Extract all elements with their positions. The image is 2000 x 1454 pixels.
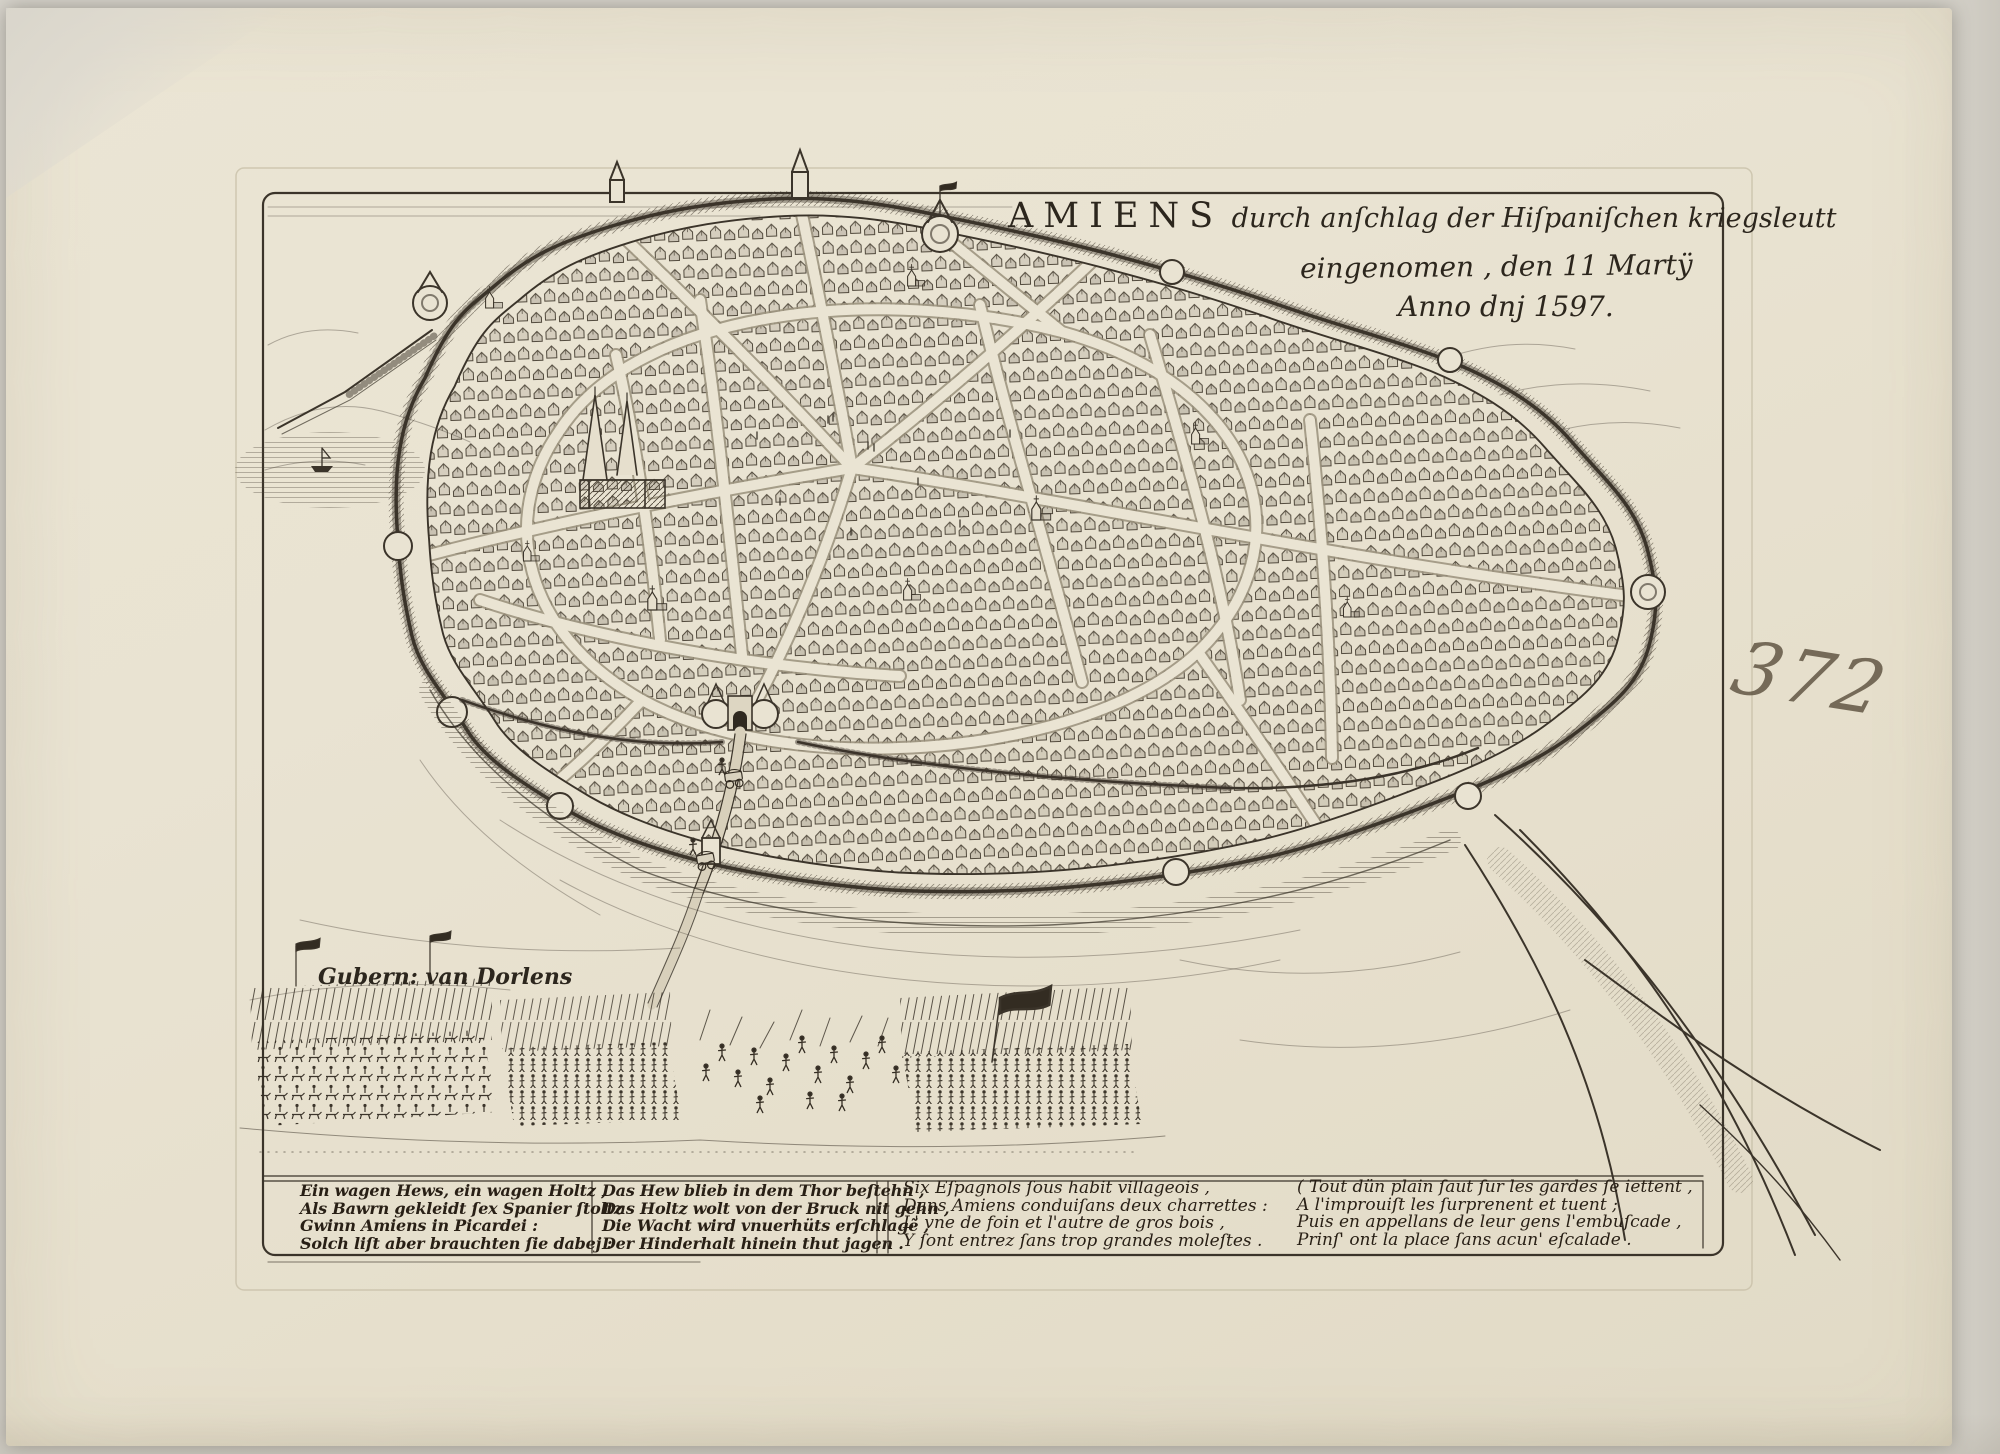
scanned-print: AMIENS durch anſchlag der Hiſpaniſchen k…	[0, 0, 2000, 1454]
caption-line: Das Holtz wolt von der Bruck nit gehn ,	[602, 1200, 949, 1218]
caption-french-column-2: ( Tout dün plain ſaut ſur les gardes ſe …	[1297, 1179, 1693, 1249]
caption-german-column-2: Das Hew blieb in dem Thor beſtehn , Das …	[602, 1182, 949, 1252]
caption-line: Die Wacht wird vnuerhüts erſchlagẽ ,	[602, 1217, 949, 1235]
caption-line: Y ſont entrez ſans trop grandes moleſtes…	[903, 1233, 1268, 1251]
caption-line: Six Eſpagnols ſous habit villageois ,	[903, 1180, 1268, 1198]
caption-line: Das Hew blieb in dem Thor beſtehn ,	[602, 1182, 949, 1200]
paper-bottom-edge-shadow	[0, 1414, 2000, 1454]
caption-line: Solch liſt aber brauchten ſie dabej :	[300, 1235, 623, 1253]
governor-label: Gubern: van Dorlens	[318, 964, 572, 990]
caption-line: Der Hinderhalt hinein thut jagen .	[602, 1235, 949, 1253]
caption-line: Prinſ' ont la place ſans acun' eſcalade …	[1297, 1232, 1693, 1250]
paper-right-edge-shadow	[1940, 0, 2000, 1454]
caption-line: ( Tout dün plain ſaut ſur les gardes ſe …	[1297, 1179, 1693, 1197]
caption-line: Ein wagen Hews, ein wagen Holtz ,	[300, 1182, 623, 1200]
caption-french-column-1: Six Eſpagnols ſous habit villageois , Da…	[903, 1180, 1268, 1250]
caption-line: Gwinn Amiens in Picardei :	[300, 1217, 623, 1235]
skirmishers-at-bridge	[700, 1010, 899, 1113]
title-city-name: AMIENS	[1008, 196, 1223, 236]
title-line2: eingenomen , den 11 Martÿ	[1300, 248, 1693, 285]
title-line1-rest: durch anſchlag der Hiſpaniſchen kriegsle…	[1223, 203, 1836, 234]
caption-german-column-1: Ein wagen Hews, ein wagen Holtz , Als Ba…	[300, 1182, 623, 1252]
title-line3: Anno dnj 1597.	[1398, 290, 1614, 323]
print-title: AMIENS durch anſchlag der Hiſpaniſchen k…	[1008, 196, 1836, 236]
caption-line: Als Bawrn gekleidt ſex Spanier ſtoltz	[300, 1200, 623, 1218]
caption-line: L' vne de foin et l'autre de gros bois ,	[903, 1215, 1268, 1233]
caption-line: Puis en appellans de leur gens l'embuſca…	[1297, 1214, 1693, 1232]
